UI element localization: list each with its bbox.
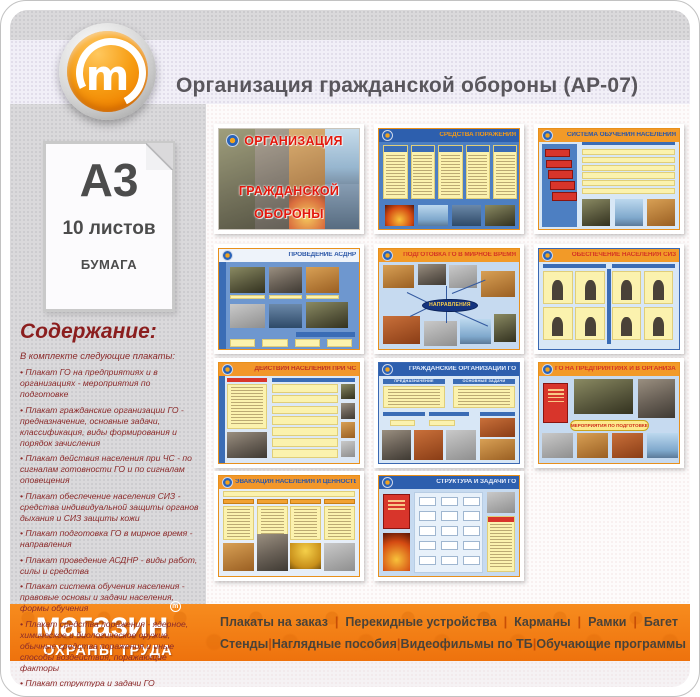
- poster-decor: [388, 508, 405, 509]
- poster-decor: [272, 416, 338, 425]
- poster-canvas: ЭВАКУАЦИЯ НАСЕЛЕНИЯ И ЦЕННОСТЕЙ: [218, 475, 360, 577]
- shop-logo-letter: m: [59, 55, 156, 97]
- poster-decor: [552, 192, 577, 200]
- poster-decor: [543, 383, 568, 423]
- poster-decor: [413, 155, 432, 196]
- poster-body: [219, 376, 359, 463]
- poster-decor: [257, 534, 288, 571]
- poster-decor: [414, 430, 443, 460]
- poster-decor: [548, 393, 564, 395]
- poster-decor: [230, 295, 265, 299]
- poster-decor: [227, 378, 266, 382]
- poster-decor: [257, 499, 288, 503]
- poster-decor: [463, 556, 480, 565]
- poster-decor: [585, 317, 596, 336]
- poster-decor: [490, 524, 512, 567]
- poster-decor: [388, 389, 440, 405]
- poster-decor: [227, 432, 266, 458]
- poster-body: [379, 142, 519, 229]
- poster-decor: [306, 267, 340, 293]
- poster-decor: [294, 509, 317, 537]
- contents-intro: В комплекте следующие плакаты:: [20, 351, 201, 361]
- menu-separator: |: [504, 614, 508, 629]
- poster-decor: [653, 280, 664, 299]
- poster-decor: [262, 339, 287, 348]
- cover-title-line: ОБОРОНЫ: [219, 207, 359, 221]
- poster-canvas: СИСТЕМА ОБУЧЕНИЯ НАСЕЛЕНИЯ: [538, 128, 680, 230]
- poster-decor: [546, 160, 571, 168]
- poster-decor: [269, 295, 301, 299]
- poster-decor: [548, 170, 573, 178]
- poster-title: ПОДГОТОВКА ГО В МИРНОЕ ВРЕМЯ: [395, 252, 516, 258]
- poster-decor: [441, 497, 458, 506]
- poster-decor: [383, 494, 410, 529]
- poster-decor: [441, 511, 458, 520]
- poster-decor: [480, 412, 515, 416]
- poster-decor: [382, 430, 411, 460]
- poster-decor: [494, 314, 516, 342]
- poster-thumbnails-grid: ОРГАНИЗАЦИЯГРАЖДАНСКОЙОБОРОНЫСРЕДСТВА ПО…: [206, 104, 690, 604]
- poster-decor: [390, 420, 415, 427]
- poster-canvas: СРЕДСТВА ПОРАЖЕНИЯ: [378, 128, 520, 230]
- poster-decor: [480, 439, 515, 460]
- poster-section-label: ОСНОВНЫЕ ЗАДАЧИ: [453, 379, 515, 384]
- poster-decor: [487, 516, 515, 572]
- poster-decor: [341, 441, 355, 457]
- mchs-emblem-icon: [542, 130, 553, 141]
- poster-thumbnail[interactable]: ГО НА ПРЕДПРИЯТИЯХ И В ОРГАНИЗАЦИЯХМЕРОП…: [534, 358, 684, 468]
- poster-decor: [438, 145, 463, 199]
- poster-canvas: ГО НА ПРЕДПРИЯТИЯХ И В ОРГАНИЗАЦИЯХМЕРОП…: [538, 362, 680, 464]
- poster-decor: [223, 491, 355, 497]
- footer-menu-row-2: Стенды|Наглядные пособия|Видеофильмы по …: [220, 636, 678, 651]
- poster-decor: [383, 386, 445, 409]
- poster-decor: [644, 271, 673, 304]
- poster-decor: [612, 433, 643, 457]
- poster-decor: [552, 280, 563, 299]
- contents-item: Плакат ГО на предприятиях и в организаци…: [20, 367, 201, 400]
- poster-decor: [227, 509, 250, 537]
- poster-body: [539, 142, 679, 229]
- mchs-emblem-icon: [382, 364, 393, 375]
- poster-header: ПОДГОТОВКА ГО В МИРНОЕ ВРЕМЯ: [379, 249, 519, 262]
- footer-menu-item[interactable]: Перекидные устройства: [345, 615, 496, 629]
- poster-center-label: НАПРАВЛЕНИЯ: [422, 299, 477, 312]
- poster-decor: [644, 307, 673, 340]
- poster-decor: [272, 406, 338, 415]
- poster-decor: [306, 302, 348, 328]
- poster-decor: [638, 379, 674, 417]
- poster-decor: [441, 541, 458, 550]
- contents-list: Плакат ГО на предприятиях и в организаци…: [20, 367, 201, 687]
- poster-decor: [582, 165, 674, 171]
- poster-decor: [386, 155, 405, 196]
- poster-decor: [419, 556, 436, 565]
- poster-decor: [542, 144, 577, 228]
- poster-decor: [543, 307, 572, 340]
- poster-canvas: ОРГАНИЗАЦИЯГРАЖДАНСКОЙОБОРОНЫ: [218, 128, 360, 230]
- poster-decor: [493, 145, 518, 199]
- poster-decor: [543, 271, 572, 304]
- poster-decor: [295, 339, 320, 348]
- poster-decor: [411, 145, 436, 199]
- poster-decor: [439, 146, 462, 151]
- poster-decor: [545, 149, 570, 157]
- footer-menu: Плакаты на заказ|Перекидные устройства|К…: [206, 604, 690, 661]
- poster-decor: [272, 449, 338, 458]
- poster-decor: [467, 146, 490, 151]
- poster-decor: [582, 199, 610, 225]
- poster-decor: [446, 430, 475, 460]
- poster-title: СРЕДСТВА ПОРАЖЕНИЯ: [395, 132, 516, 138]
- poster-decor: [227, 384, 266, 429]
- poster-decor: [582, 172, 674, 178]
- poster-decor: [647, 199, 675, 225]
- contents-item: Плакат проведение АСДНР - виды работ, си…: [20, 555, 201, 577]
- poster-decor: [219, 262, 226, 349]
- poster-canvas: СТРУКТУРА И ЗАДАЧИ ГО: [378, 475, 520, 577]
- poster-body: [539, 262, 679, 349]
- poster-decor: [412, 146, 435, 151]
- poster-decor: [414, 492, 483, 572]
- poster-decor: [384, 146, 407, 151]
- poster-decor: [418, 264, 446, 285]
- poster-title: ОБЕСПЕЧЕНИЕ НАСЕЛЕНИЯ СИЗ: [555, 252, 676, 258]
- poster-decor: [324, 506, 355, 541]
- cover-title-line: ГРАЖДАНСКОЙ: [219, 184, 359, 198]
- poster-body: [379, 489, 519, 576]
- shop-logo: m: [59, 23, 156, 120]
- poster-decor: [231, 387, 262, 425]
- poster-decor: [388, 500, 405, 501]
- poster-header: ПРОВЕДЕНИЕ АСДНР: [219, 249, 359, 262]
- poster-decor: [488, 517, 514, 522]
- poster-canvas: ДЕЙСТВИЯ НАСЕЛЕНИЯ ПРИ ЧС: [218, 362, 360, 464]
- poster-decor: [383, 145, 408, 199]
- poster-decor: [296, 332, 355, 337]
- poster-decor: [272, 395, 338, 404]
- poster-decor: [466, 145, 491, 199]
- poster-decor: [441, 526, 458, 535]
- poster-decor: [341, 403, 355, 419]
- poster-decor: [269, 304, 301, 328]
- poster-decor: [230, 304, 265, 328]
- poster-decor: [494, 146, 517, 151]
- product-card: магазинm ОХРАНЫ ТРУДА Плакаты на заказ|П…: [0, 0, 700, 697]
- poster-decor: [328, 509, 351, 537]
- poster-decor: [550, 181, 575, 189]
- poster-decor: [261, 509, 284, 537]
- footer-menu-item[interactable]: Багет: [644, 615, 678, 629]
- poster-decor: [429, 412, 468, 416]
- poster-title: ПРОВЕДЕНИЕ АСДНР: [235, 252, 356, 258]
- poster-decor: [446, 311, 447, 323]
- poster-decor: [621, 317, 632, 336]
- poster-header: ЭВАКУАЦИЯ НАСЕЛЕНИЯ И ЦЕННОСТЕЙ: [219, 476, 359, 489]
- footer-menu-item[interactable]: Плакаты на заказ: [220, 615, 328, 629]
- material-label: БУМАГА: [46, 257, 172, 272]
- poster-decor: [324, 543, 355, 571]
- poster-decor: [543, 264, 606, 268]
- poster-thumbnail[interactable]: СТРУКТУРА И ЗАДАЧИ ГО: [374, 471, 524, 581]
- poster-decor: [548, 397, 564, 399]
- card-inner: магазинm ОХРАНЫ ТРУДА Плакаты на заказ|П…: [10, 10, 690, 687]
- poster-decor: [463, 526, 480, 535]
- poster-decor: [453, 386, 515, 409]
- poster-decor: [230, 267, 265, 293]
- poster-decor: [272, 384, 338, 393]
- poster-decor: [272, 427, 338, 436]
- footer-menu-item[interactable]: Обучающие программы: [536, 637, 686, 651]
- poster-header: ДЕЙСТВИЯ НАСЕЛЕНИЯ ПРИ ЧС: [219, 363, 359, 376]
- poster-decor: [463, 541, 480, 550]
- cover-title-line: ОРГАНИЗАЦИЯ: [244, 134, 343, 148]
- poster-thumbnail[interactable]: СРЕДСТВА ПОРАЖЕНИЯ: [374, 124, 524, 234]
- contents-item: Плакат гражданские организации ГО - пред…: [20, 405, 201, 449]
- footer-menu-item[interactable]: Карманы: [514, 615, 570, 629]
- mchs-emblem-icon: [542, 364, 553, 375]
- poster-header: ГРАЖДАНСКИЕ ОРГАНИЗАЦИИ ГО: [379, 363, 519, 376]
- poster-canvas: ГРАЖДАНСКИЕ ОРГАНИЗАЦИИ ГОПРЕДНАЗНАЧЕНИЕ…: [378, 362, 520, 464]
- sheets-count-label: 10 листов: [46, 218, 172, 240]
- poster-title: СТРУКТУРА И ЗАДАЧИ ГО: [395, 479, 516, 485]
- mchs-emblem-icon: [222, 250, 233, 261]
- poster-body: [219, 489, 359, 576]
- poster-decor: [383, 265, 414, 288]
- contents-item: Плакат обеспечение населения СИЗ - средс…: [20, 491, 201, 524]
- poster-section-label: ПРЕДНАЗНАЧЕНИЕ: [383, 379, 445, 384]
- poster-decor: [290, 506, 321, 541]
- poster-decor: [429, 420, 454, 427]
- poster-thumbnail[interactable]: СИСТЕМА ОБУЧЕНИЯ НАСЕЛЕНИЯ: [534, 124, 684, 234]
- poster-decor: [272, 438, 338, 447]
- menu-separator: |: [633, 614, 637, 629]
- poster-header: ГО НА ПРЕДПРИЯТИЯХ И В ОРГАНИЗАЦИЯХ: [539, 363, 679, 376]
- contents-heading: Содержание:: [20, 320, 201, 344]
- footer-menu-item[interactable]: Наглядные пособия: [272, 637, 397, 651]
- contents-item: Плакат подготовка ГО в мирное время - на…: [20, 528, 201, 550]
- poster-decor: ПРЕДНАЗНАЧЕНИЕ: [383, 379, 445, 384]
- poster-decor: [582, 142, 674, 145]
- paper-format-icon: А3 10 листов БУМАГА: [43, 141, 175, 312]
- poster-title: СИСТЕМА ОБУЧЕНИЯ НАСЕЛЕНИЯ: [555, 132, 676, 138]
- poster-body: [219, 262, 359, 349]
- poster-decor: [385, 205, 414, 226]
- poster-thumbnail[interactable]: ПРОВЕДЕНИЕ АСДНР: [214, 244, 364, 354]
- poster-decor: [612, 271, 641, 304]
- poster-decor: [383, 533, 410, 571]
- poster-decor: [582, 180, 674, 186]
- poster-decor: [441, 556, 458, 565]
- mchs-emblem-icon: [226, 134, 239, 147]
- poster-decor: [290, 543, 321, 569]
- poster-decor: [341, 384, 355, 400]
- poster-thumbnail[interactable]: ОРГАНИЗАЦИЯГРАЖДАНСКОЙОБОРОНЫ: [214, 124, 364, 234]
- poster-decor: [647, 433, 678, 457]
- contents-item: Плакат структура и задачи ГО: [20, 678, 201, 687]
- poster-thumbnail[interactable]: ДЕЙСТВИЯ НАСЕЛЕНИЯ ПРИ ЧС: [214, 358, 364, 468]
- footer-menu-item[interactable]: Рамки: [588, 615, 626, 629]
- poster-decor: [327, 339, 352, 348]
- poster-decor: [419, 526, 436, 535]
- poster-decor: [324, 499, 355, 503]
- poster-decor: [230, 339, 255, 348]
- poster-canvas: ПОДГОТОВКА ГО В МИРНОЕ ВРЕМЯНАПРАВЛЕНИЯ: [378, 248, 520, 350]
- poster-title: ГО НА ПРЕДПРИЯТИЯХ И В ОРГАНИЗАЦИЯХ: [555, 366, 676, 372]
- poster-decor: [542, 433, 573, 457]
- mchs-emblem-icon: [222, 477, 233, 488]
- poster-decor: [219, 376, 225, 463]
- poster-thumbnail[interactable]: ПОДГОТОВКА ГО В МИРНОЕ ВРЕМЯНАПРАВЛЕНИЯ: [374, 244, 524, 354]
- poster-decor: [575, 271, 604, 304]
- poster-decor: [419, 497, 436, 506]
- poster-decor: [582, 149, 674, 155]
- poster-decor: [269, 267, 301, 293]
- poster-header: СИСТЕМА ОБУЧЕНИЯ НАСЕЛЕНИЯ: [539, 129, 679, 142]
- footer-menu-row-1: Плакаты на заказ|Перекидные устройства|К…: [220, 614, 678, 629]
- poster-decor: [548, 401, 564, 403]
- poster-decor: [480, 418, 515, 437]
- poster-decor: [383, 316, 419, 344]
- poster-decor: [575, 307, 604, 340]
- poster-decor: [419, 511, 436, 520]
- mchs-emblem-icon: [382, 250, 393, 261]
- poster-title: ЭВАКУАЦИЯ НАСЕЛЕНИЯ И ЦЕННОСТЕЙ: [235, 479, 356, 485]
- poster-body: ОРГАНИЗАЦИЯГРАЖДАНСКОЙОБОРОНЫ: [219, 129, 359, 229]
- format-label: А3: [46, 157, 172, 203]
- poster-decor: [341, 422, 355, 438]
- poster-decor: [463, 511, 480, 520]
- poster-body: ПРЕДНАЗНАЧЕНИЕОСНОВНЫЕ ЗАДАЧИ: [379, 376, 519, 463]
- footer-menu-item[interactable]: Стенды: [220, 637, 268, 651]
- poster-decor: [585, 280, 596, 299]
- poster-canvas: ОБЕСПЕЧЕНИЕ НАСЕЛЕНИЯ СИЗ: [538, 248, 680, 350]
- poster-decor: [487, 492, 515, 513]
- poster-header: ОБЕСПЕЧЕНИЕ НАСЕЛЕНИЯ СИЗ: [539, 249, 679, 262]
- poster-decor: [552, 317, 563, 336]
- poster-decor: [424, 321, 458, 345]
- contents-section: Содержание: В комплекте следующие плакат…: [20, 320, 201, 687]
- poster-decor: [452, 205, 481, 226]
- poster-decor: [306, 295, 340, 299]
- contents-item: Плакат действия населения при ЧС - по си…: [20, 453, 201, 486]
- poster-decor: [388, 504, 405, 505]
- poster-title: ГРАЖДАНСКИЕ ОРГАНИЗАЦИИ ГО: [395, 366, 516, 372]
- poster-decor: [485, 205, 514, 226]
- poster-decor: [621, 280, 632, 299]
- poster-decor: [383, 412, 425, 416]
- mchs-emblem-icon: [382, 130, 393, 141]
- poster-center-label: МЕРОПРИЯТИЯ ПО ПОДГОТОВКЕ: [570, 420, 649, 432]
- poster-decor: [582, 188, 674, 194]
- poster-decor: [223, 543, 254, 571]
- poster-decor: [612, 264, 675, 268]
- poster-decor: [577, 433, 608, 457]
- contents-item: Плакат средства поражения - ядерное, хим…: [20, 619, 201, 674]
- poster-decor: ОСНОВНЫЕ ЗАДАЧИ: [453, 379, 515, 384]
- poster-decor: [463, 497, 480, 506]
- poster-decor: [481, 271, 515, 297]
- poster-decor: [458, 389, 510, 405]
- mchs-emblem-icon: [382, 477, 393, 488]
- poster-thumbnail[interactable]: ЭВАКУАЦИЯ НАСЕЛЕНИЯ И ЦЕННОСТЕЙ: [214, 471, 364, 581]
- menu-separator: |: [578, 614, 582, 629]
- poster-decor: [653, 317, 664, 336]
- poster-decor: [615, 199, 643, 225]
- menu-separator: |: [335, 614, 339, 629]
- poster-canvas: ПРОВЕДЕНИЕ АСДНР: [218, 248, 360, 350]
- poster-body: НАПРАВЛЕНИЯ: [379, 262, 519, 349]
- mchs-emblem-icon: [222, 364, 233, 375]
- poster-decor: [612, 307, 641, 340]
- poster-decor: [223, 499, 254, 503]
- poster-decor: [418, 205, 447, 226]
- poster-decor: [496, 155, 515, 196]
- poster-decor: [223, 506, 254, 541]
- poster-decor: [548, 389, 564, 391]
- poster-body: МЕРОПРИЯТИЯ ПО ПОДГОТОВКЕ: [539, 376, 679, 463]
- footer-menu-item[interactable]: Видеофильмы по ТБ: [401, 637, 533, 651]
- poster-decor: [290, 499, 321, 503]
- poster-decor: [574, 379, 633, 414]
- contents-item: Плакат система обучения населения - прав…: [20, 581, 201, 614]
- poster-decor: [419, 541, 436, 550]
- poster-decor: [441, 155, 460, 196]
- poster-title: ДЕЙСТВИЯ НАСЕЛЕНИЯ ПРИ ЧС: [235, 366, 356, 372]
- poster-decor: [272, 378, 355, 382]
- poster-thumbnail[interactable]: ГРАЖДАНСКИЕ ОРГАНИЗАЦИИ ГОПРЕДНАЗНАЧЕНИЕ…: [374, 358, 524, 468]
- poster-decor: [468, 155, 487, 196]
- poster-decor: [582, 157, 674, 163]
- poster-decor: [607, 269, 611, 344]
- poster-header: СТРУКТУРА И ЗАДАЧИ ГО: [379, 476, 519, 489]
- poster-decor: [460, 319, 491, 343]
- poster-header: СРЕДСТВА ПОРАЖЕНИЯ: [379, 129, 519, 142]
- mchs-emblem-icon: [542, 250, 553, 261]
- poster-thumbnail[interactable]: ОБЕСПЕЧЕНИЕ НАСЕЛЕНИЯ СИЗ: [534, 244, 684, 354]
